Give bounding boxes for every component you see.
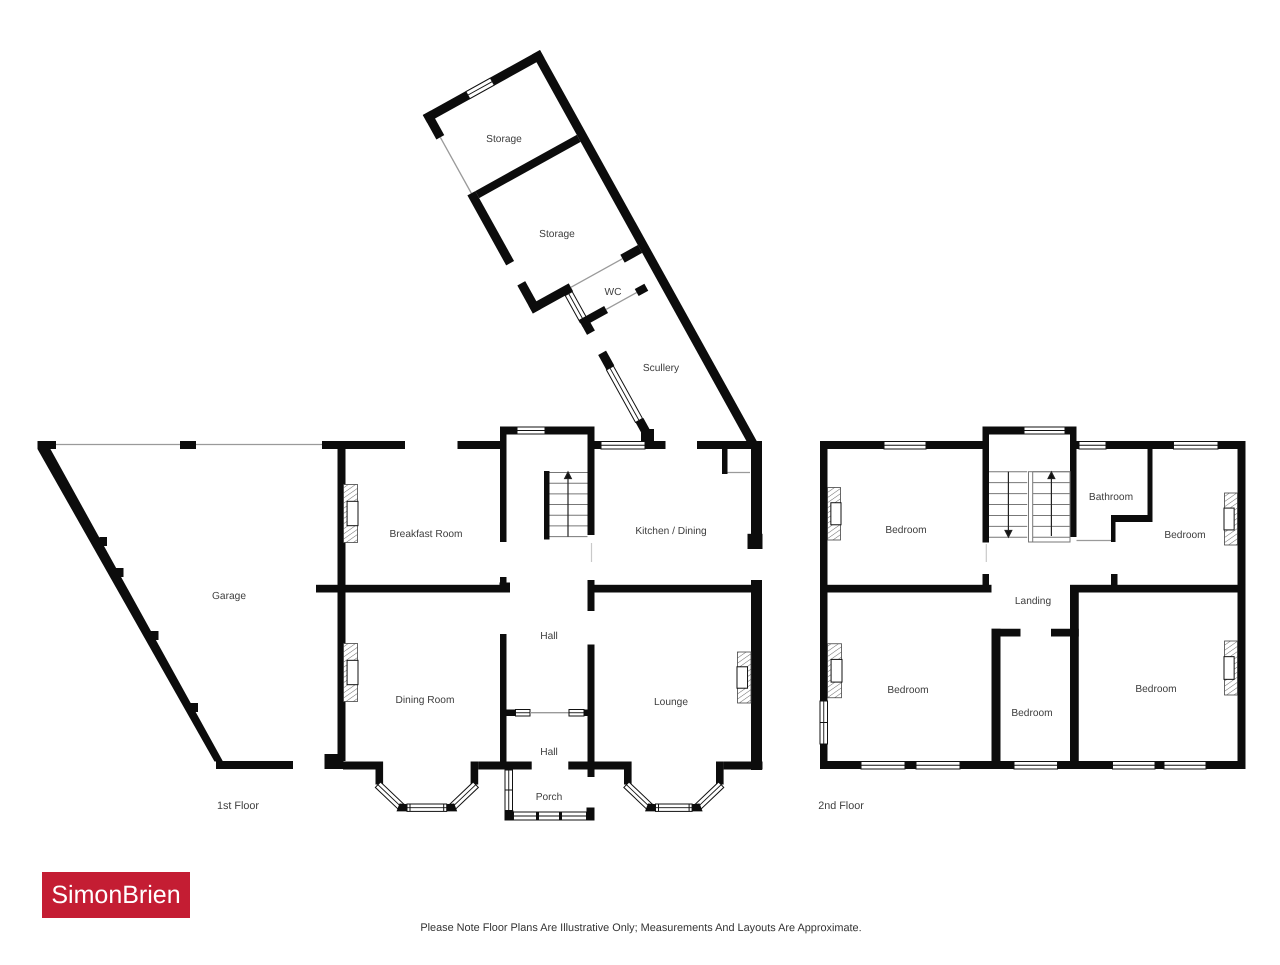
svg-text:Storage: Storage	[486, 134, 522, 145]
svg-text:Bathroom: Bathroom	[1089, 492, 1133, 503]
svg-text:Bedroom: Bedroom	[1011, 708, 1052, 719]
svg-text:SimonBrien: SimonBrien	[51, 881, 180, 909]
svg-text:Dining Room: Dining Room	[396, 695, 455, 706]
svg-text:Bedroom: Bedroom	[885, 525, 926, 536]
svg-text:Landing: Landing	[1015, 596, 1052, 607]
svg-text:Kitchen / Dining: Kitchen / Dining	[635, 526, 707, 537]
svg-text:Bedroom: Bedroom	[1164, 530, 1205, 541]
svg-text:Bedroom: Bedroom	[887, 685, 928, 696]
svg-text:Breakfast Room: Breakfast Room	[389, 529, 462, 540]
svg-text:Please Note Floor Plans Are Il: Please Note Floor Plans Are Illustrative…	[420, 922, 861, 934]
svg-text:WC: WC	[605, 287, 622, 298]
svg-text:1st Floor: 1st Floor	[217, 800, 259, 812]
svg-text:2nd Floor: 2nd Floor	[818, 800, 864, 812]
svg-text:Hall: Hall	[540, 631, 558, 642]
svg-text:Scullery: Scullery	[643, 363, 680, 374]
svg-text:Garage: Garage	[212, 591, 246, 602]
svg-text:Lounge: Lounge	[654, 697, 688, 708]
svg-text:Bedroom: Bedroom	[1135, 684, 1176, 695]
svg-text:Hall: Hall	[540, 747, 558, 758]
svg-text:Porch: Porch	[536, 792, 563, 803]
svg-text:Storage: Storage	[539, 229, 575, 240]
